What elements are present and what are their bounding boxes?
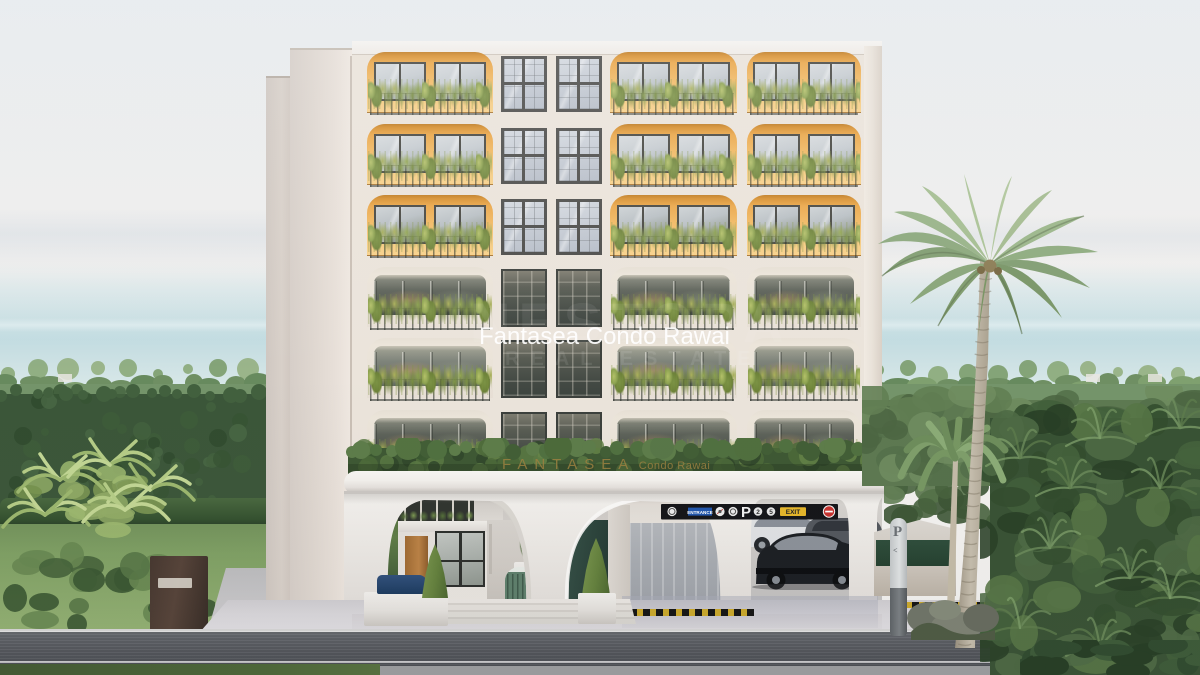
svg-text:P: P [741,504,751,521]
svg-text:EXIT: EXIT [786,509,800,516]
svg-text:ENTRANCE: ENTRANCE [687,510,713,515]
svg-text:5: 5 [769,509,773,516]
svg-text:2: 2 [756,509,760,516]
